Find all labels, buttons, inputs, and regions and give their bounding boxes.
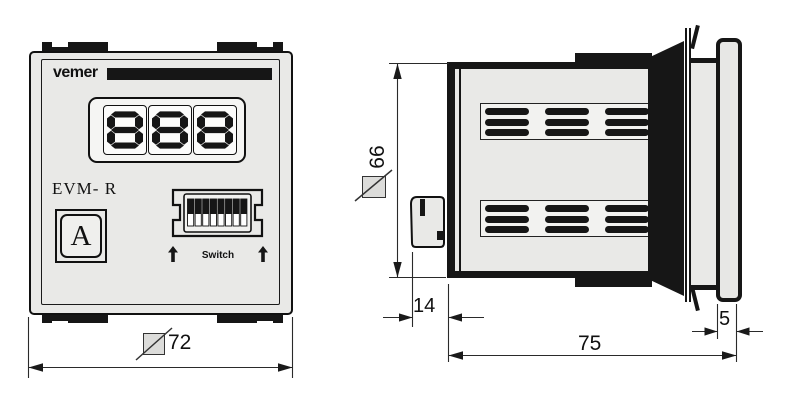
- dimensional-drawing: vemer: [0, 0, 799, 415]
- body-inner-line: [459, 62, 461, 278]
- digit-cell: [148, 105, 192, 155]
- latch-prong-top: [690, 25, 700, 49]
- width-dimension-value: 72: [168, 331, 191, 355]
- body-top-edge: [447, 62, 652, 69]
- case-collar-top-edge: [691, 58, 717, 63]
- case-collar-bottom-edge: [691, 285, 717, 290]
- vent-panel-top: [480, 103, 652, 140]
- digit-eight: [197, 109, 233, 151]
- bezel-thickness-dimension-value: 5: [719, 308, 730, 331]
- depth-dimension-value: 75: [578, 332, 601, 356]
- top-step: [575, 53, 652, 62]
- a-button-inner: A: [60, 214, 102, 258]
- height-dimension-value: 66: [366, 140, 388, 174]
- body-fill: [447, 62, 652, 278]
- a-button[interactable]: A: [55, 209, 107, 263]
- brand-logo: vemer: [53, 64, 98, 82]
- body-left-edge: [447, 62, 455, 278]
- mount-tab-notch: [52, 321, 68, 326]
- digit-eight: [107, 109, 143, 151]
- digit-cell: [193, 105, 237, 155]
- header-bar: [107, 68, 272, 80]
- digit-cell: [103, 105, 147, 155]
- mount-tab-notch: [257, 321, 273, 326]
- latch-prong-bottom: [690, 287, 700, 311]
- switch-label: Switch: [198, 250, 238, 261]
- panel-sheet-line: [685, 28, 687, 302]
- front-bezel: [716, 38, 742, 302]
- vent-panel-bottom: [480, 200, 652, 237]
- bottom-step: [575, 278, 652, 287]
- square-symbol-height: [362, 176, 386, 198]
- terminal-connector: [408, 194, 448, 250]
- rear-protrusion-dimension-value: 14: [413, 295, 435, 318]
- mount-tab-notch: [52, 42, 68, 47]
- case-collar: [691, 58, 717, 290]
- up-arrow-icon: [258, 246, 268, 262]
- digit-eight: [152, 109, 188, 151]
- a-button-label: A: [71, 220, 92, 252]
- up-arrow-icon: [168, 246, 178, 262]
- body-bottom-edge: [447, 271, 652, 278]
- model-label: EVM- R: [52, 179, 117, 199]
- dip-switch-block[interactable]: [170, 188, 265, 238]
- square-symbol-width: [143, 333, 165, 355]
- mounting-clip-wedge: [648, 40, 684, 296]
- mount-tab-notch: [257, 42, 273, 47]
